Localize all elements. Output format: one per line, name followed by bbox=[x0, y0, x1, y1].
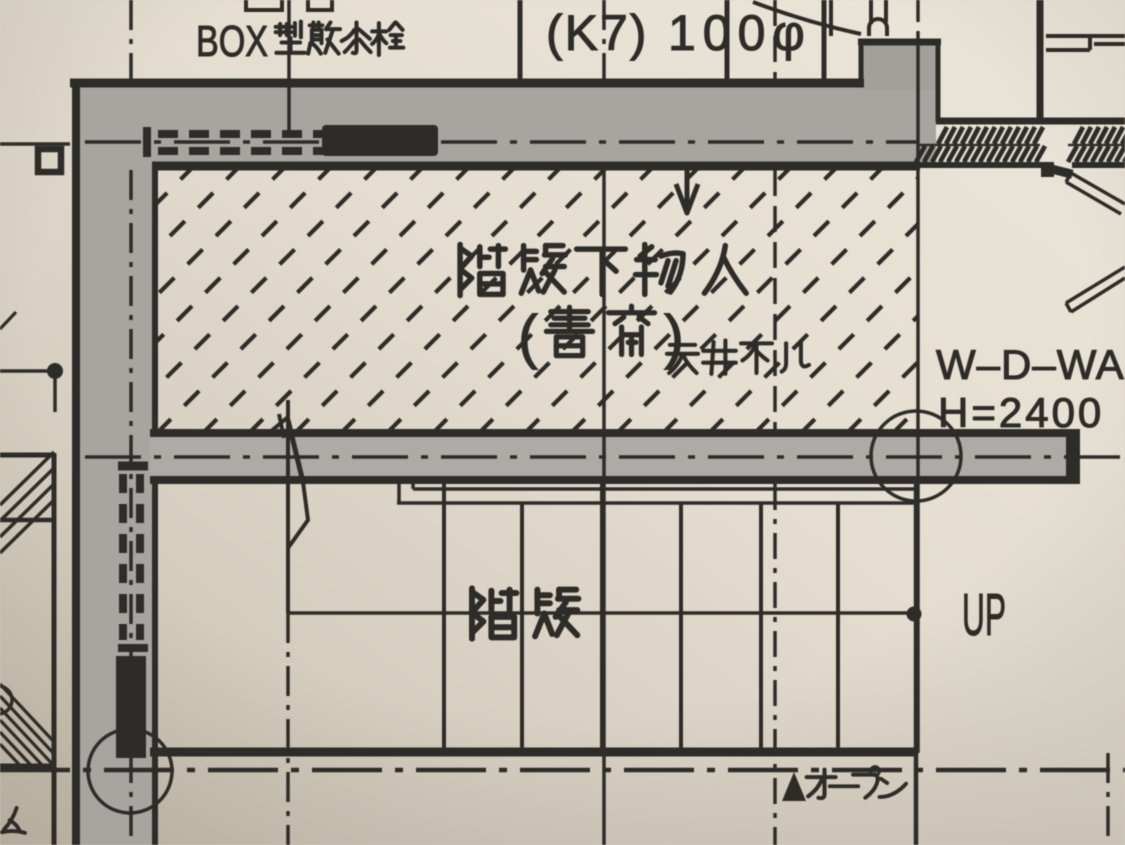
svg-text:(: ( bbox=[518, 303, 538, 370]
svg-text:100φ: 100φ bbox=[668, 5, 812, 61]
svg-text:H=2400: H=2400 bbox=[938, 389, 1104, 436]
svg-text:UP: UP bbox=[962, 582, 1006, 648]
svg-text:BOX: BOX bbox=[196, 17, 268, 66]
svg-text:(K7): (K7) bbox=[546, 5, 648, 61]
svg-text:W–D–WA: W–D–WA bbox=[936, 341, 1125, 388]
